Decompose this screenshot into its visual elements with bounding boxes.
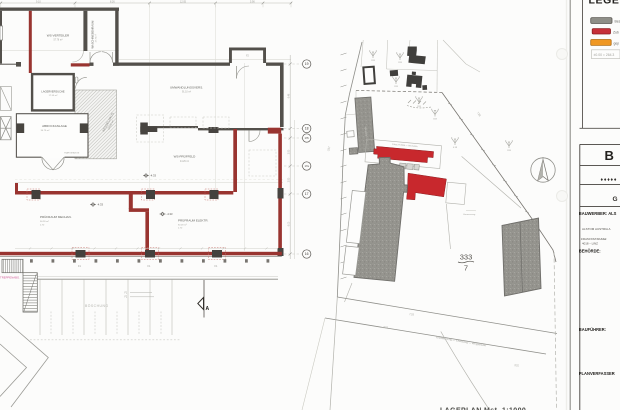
svg-text:LAGERVERSUCHE: LAGERVERSUCHE (41, 90, 64, 94)
svg-text:6.00: 6.00 (288, 221, 290, 226)
svg-text:PRÜFRAUM MECHAN.: PRÜFRAUM MECHAN. (40, 215, 72, 219)
svg-text:TREPPENABG.: TREPPENABG. (0, 275, 20, 279)
svg-text:♦♦♦♦♦: ♦♦♦♦♦ (601, 177, 618, 183)
svg-text:A: A (206, 306, 210, 312)
svg-text:WASCH/NEBENRAUM: WASCH/NEBENRAUM (91, 20, 95, 49)
svg-text:6.46: 6.46 (288, 93, 290, 98)
svg-text:WS-PRÜFFELD: WS-PRÜFFELD (174, 155, 197, 159)
svg-text:Best: Best (615, 20, 620, 24)
svg-text:17.76 m²: 17.76 m² (95, 34, 98, 43)
svg-text:44.29 m²: 44.29 m² (180, 160, 189, 163)
svg-text:BAUWERBER: ALS: BAUWERBER: ALS (579, 211, 617, 216)
svg-text:19: 19 (305, 62, 309, 66)
svg-text:Vermessung: Vermessung (463, 213, 476, 216)
svg-text:PRÜFRAUM ELEKTR.: PRÜFRAUM ELEKTR. (178, 219, 209, 223)
svg-text:G: G (613, 196, 618, 203)
svg-text:UMWANDLUNGSVERS.: UMWANDLUNGSVERS. (170, 86, 203, 90)
svg-text:17.55 m²: 17.55 m² (49, 94, 58, 97)
svg-text:BÖSCHUNG: BÖSCHUNG (85, 304, 109, 308)
svg-text:9.10: 9.10 (36, 0, 41, 3)
svg-text:5.90: 5.90 (250, 0, 255, 3)
svg-text:PLANVERFASSER: PLANVERFASSER (579, 371, 615, 376)
svg-text:BEHÖRDE:: BEHÖRDE: (579, 248, 601, 253)
svg-text:gep: gep (614, 41, 620, 45)
svg-text:±0.00 = 264.3: ±0.00 = 264.3 (594, 53, 615, 57)
svg-text:2.80: 2.80 (288, 177, 290, 182)
svg-text:-4.33: -4.33 (97, 203, 103, 207)
svg-text:333: 333 (460, 253, 473, 262)
svg-text:8.26: 8.26 (110, 0, 115, 3)
svg-text:729: 729 (409, 312, 415, 317)
svg-text:-4.33: -4.33 (167, 212, 173, 216)
svg-text:4018 – LINZ: 4018 – LINZ (582, 241, 598, 245)
svg-text:17a: 17a (305, 164, 310, 168)
svg-text:17: 17 (305, 192, 309, 196)
svg-text:2.80: 2.80 (288, 149, 290, 154)
svg-text:TRAFOSTATION: TRAFOSTATION (64, 151, 80, 154)
svg-text:WS-VERTEILER: WS-VERTEILER (47, 33, 70, 37)
svg-text:7: 7 (464, 264, 468, 273)
svg-text:16: 16 (305, 252, 309, 256)
svg-text:B: B (605, 148, 614, 163)
svg-text:LEGENDE: LEGENDE (589, 0, 620, 7)
svg-text:91.10 m²: 91.10 m² (182, 91, 191, 94)
svg-text:323: 323 (383, 325, 389, 330)
svg-text:17b: 17b (305, 136, 310, 140)
svg-text:ALSTOM AUSTRIA A: ALSTOM AUSTRIA A (582, 227, 610, 231)
svg-text:92.28 m²: 92.28 m² (178, 224, 187, 227)
svg-text:Zub: Zub (613, 30, 619, 34)
svg-text:-4.33: -4.33 (150, 174, 156, 178)
svg-text:57.76 m²: 57.76 m² (53, 38, 62, 41)
svg-text:BAUFÜHRER:: BAUFÜHRER: (579, 327, 606, 332)
svg-text:56.28 m²: 56.28 m² (40, 220, 49, 223)
svg-text:18: 18 (305, 127, 309, 131)
svg-text:325: 325 (514, 363, 520, 368)
svg-text:12.05: 12.05 (180, 0, 187, 3)
svg-text:FRANCKSTRASSE: FRANCKSTRASSE (581, 237, 606, 241)
svg-text:ABROCKANLAGE: ABROCKANLAGE (42, 124, 67, 128)
svg-text:30.73 m²: 30.73 m² (41, 129, 50, 132)
